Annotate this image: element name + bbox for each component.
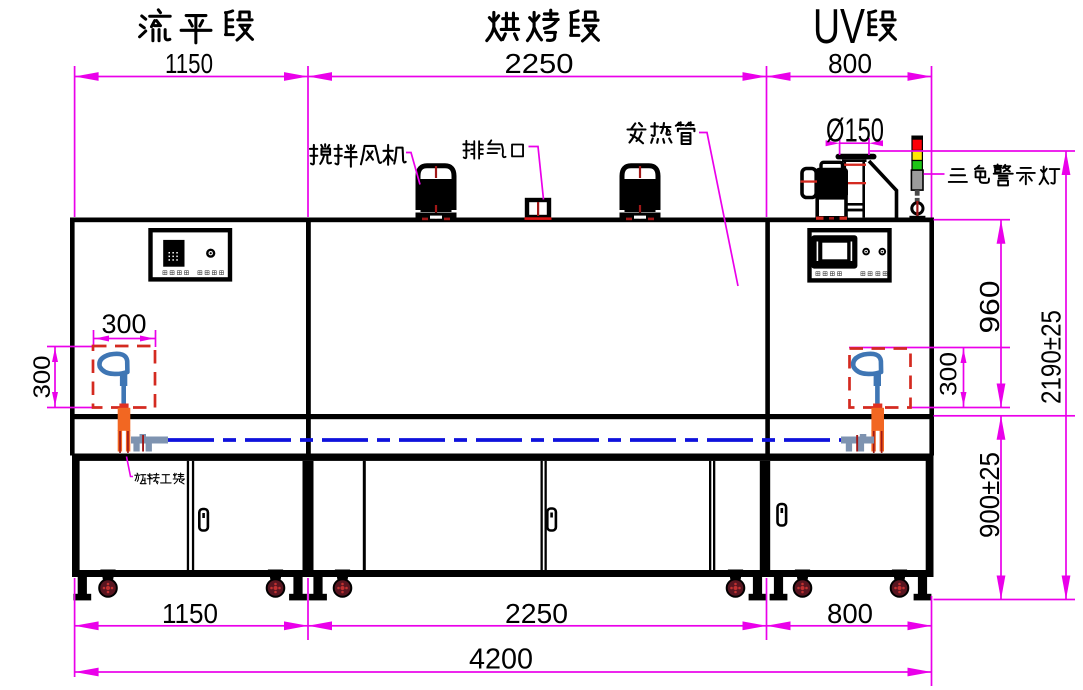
- svg-text:UV: UV: [813, 0, 865, 54]
- svg-text:1150: 1150: [162, 598, 218, 629]
- svg-text:2190±25: 2190±25: [1036, 310, 1067, 404]
- svg-text:800: 800: [827, 598, 873, 629]
- svg-text:300: 300: [29, 356, 56, 399]
- svg-text:960: 960: [974, 281, 1005, 334]
- svg-text:800: 800: [828, 48, 872, 79]
- svg-text:4200: 4200: [469, 644, 533, 676]
- svg-text:300: 300: [935, 352, 962, 396]
- svg-text:2250: 2250: [505, 48, 574, 79]
- svg-text:1150: 1150: [165, 48, 213, 79]
- svg-text:900±25: 900±25: [974, 452, 1005, 538]
- svg-text:Ø150: Ø150: [826, 112, 884, 149]
- svg-text:2250: 2250: [505, 598, 568, 629]
- svg-text:300: 300: [102, 309, 147, 339]
